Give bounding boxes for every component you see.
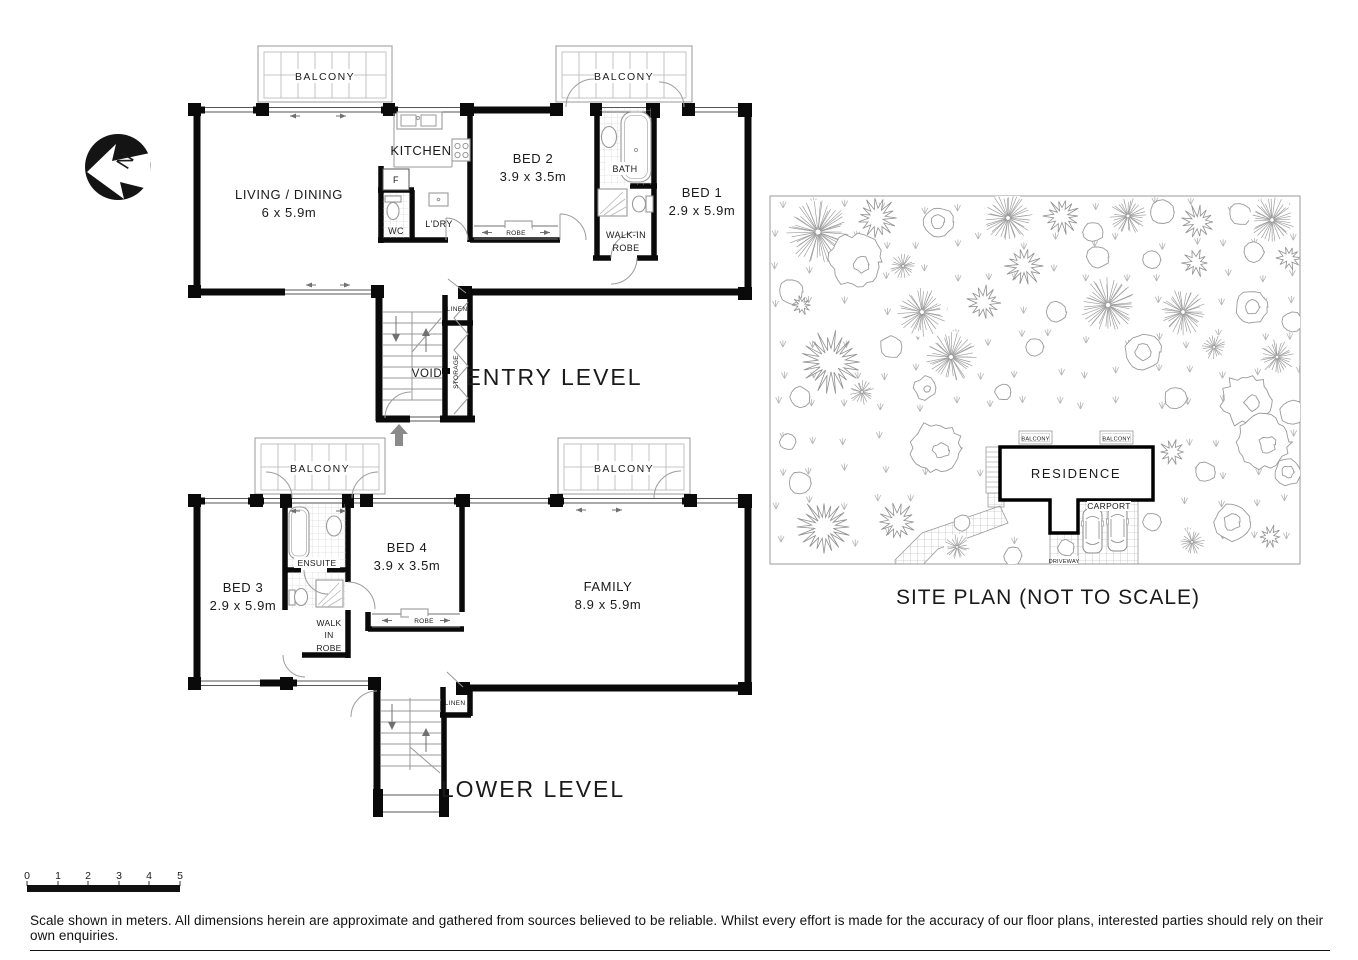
lower-balcony-left: BALCONY [255, 438, 385, 494]
scale-bar: 0 1 2 3 4 5 [24, 870, 183, 892]
room-label-wc: WC [388, 226, 404, 236]
lower-level-title: LOWER LEVEL [441, 776, 625, 802]
label-walkin-3: ROBE [316, 643, 341, 653]
balcony-label: BALCONY [1021, 437, 1049, 443]
entry-level-plan: BALCONY BALCONY [188, 46, 752, 446]
lower-level-plan: BALCONY BALCONY [188, 438, 752, 817]
balcony-label: BALCONY [594, 463, 654, 475]
car-icon [1082, 509, 1104, 553]
scale-tick-label: 2 [85, 870, 91, 882]
room-label-family: FAMILY [584, 579, 633, 594]
room-label-bed1: BED 1 [682, 185, 723, 200]
bath-fixtures [598, 108, 653, 216]
label-void: VOID [412, 368, 443, 380]
label-walkin-2: IN [324, 630, 333, 640]
lower-windows [198, 496, 738, 687]
lower-balcony-right: BALCONY [558, 438, 690, 494]
ensuite-fixtures [288, 504, 346, 608]
basin-icon [602, 127, 617, 148]
room-label-ensuite: ENSUITE [298, 558, 337, 568]
room-label-kitchen: KITCHEN [390, 143, 451, 158]
scale-bar-rule [27, 885, 180, 892]
residence-label: RESIDENCE [1031, 466, 1121, 481]
entry-balcony-right: BALCONY [556, 46, 692, 102]
lower-wall-pillars [188, 494, 752, 695]
site-plan-title: SITE PLAN (NOT TO SCALE) [896, 586, 1200, 609]
label-linen: LINEN [445, 700, 466, 707]
balcony-label: BALCONY [290, 463, 350, 475]
toilet-icon [387, 203, 399, 220]
room-label-bath: BATH [613, 164, 638, 174]
label-walkin-1: WALK [317, 618, 342, 628]
room-label-laundry: L'DRY [425, 219, 453, 229]
room-label-bed4: BED 4 [387, 540, 428, 555]
scale-tick-label: 0 [24, 870, 30, 882]
site-plan: BALCONY BALCONY RESIDENCE [770, 193, 1304, 609]
balcony-label: BALCONY [594, 71, 654, 83]
label-walkin-2: ROBE [612, 243, 639, 253]
site-balcony-right: BALCONY [1100, 431, 1133, 444]
label-fridge: F [393, 175, 399, 185]
scale-tick-label: 4 [146, 870, 152, 882]
balcony-label: BALCONY [1102, 437, 1130, 443]
scale-tick-label: 1 [55, 870, 61, 882]
floorplan-canvas: N BALCONY BALCONY [0, 0, 1358, 960]
scale-tick-label: 3 [116, 870, 122, 882]
floorplan-page: N BALCONY BALCONY [0, 0, 1358, 960]
entry-stairwell [376, 279, 475, 446]
label-linen: LINEN [447, 306, 468, 313]
car-icon [1107, 507, 1129, 551]
toilet-icon [633, 196, 646, 212]
carport-label: CARPORT [1087, 501, 1131, 511]
entry-balcony-left: BALCONY [258, 46, 392, 102]
room-dims-bed4: 3.9 x 3.5m [374, 558, 441, 573]
room-label-bed2: BED 2 [513, 151, 554, 166]
stove-icon [452, 139, 470, 161]
entry-arrow-icon [390, 424, 408, 446]
site-balcony-left: BALCONY [1019, 431, 1052, 444]
room-dims-bed2: 3.9 x 3.5m [500, 169, 567, 184]
room-label-living: LIVING / DINING [235, 187, 343, 202]
disclaimer-text: Scale shown in meters. All dimensions he… [30, 913, 1330, 951]
room-dims-family: 8.9 x 5.9m [575, 597, 642, 612]
basin-icon [327, 516, 342, 536]
toilet-icon [295, 589, 308, 606]
room-dims-bed1: 2.9 x 5.9m [669, 203, 736, 218]
entry-level-title: ENTRY LEVEL [465, 364, 642, 390]
balcony-label: BALCONY [295, 71, 355, 83]
room-dims-living: 6 x 5.9m [262, 205, 317, 220]
compass: N [85, 134, 152, 200]
label-walkin-1: WALK-IN [606, 230, 646, 240]
label-storage: STORAGE [453, 355, 460, 389]
room-label-bed3: BED 3 [223, 580, 264, 595]
scale-tick-label: 5 [177, 870, 183, 882]
room-dims-bed3: 2.9 x 5.9m [210, 598, 277, 613]
label-robe: ROBE [414, 618, 434, 625]
label-robe: ROBE [506, 230, 526, 237]
lower-bottom-wall [193, 683, 751, 688]
